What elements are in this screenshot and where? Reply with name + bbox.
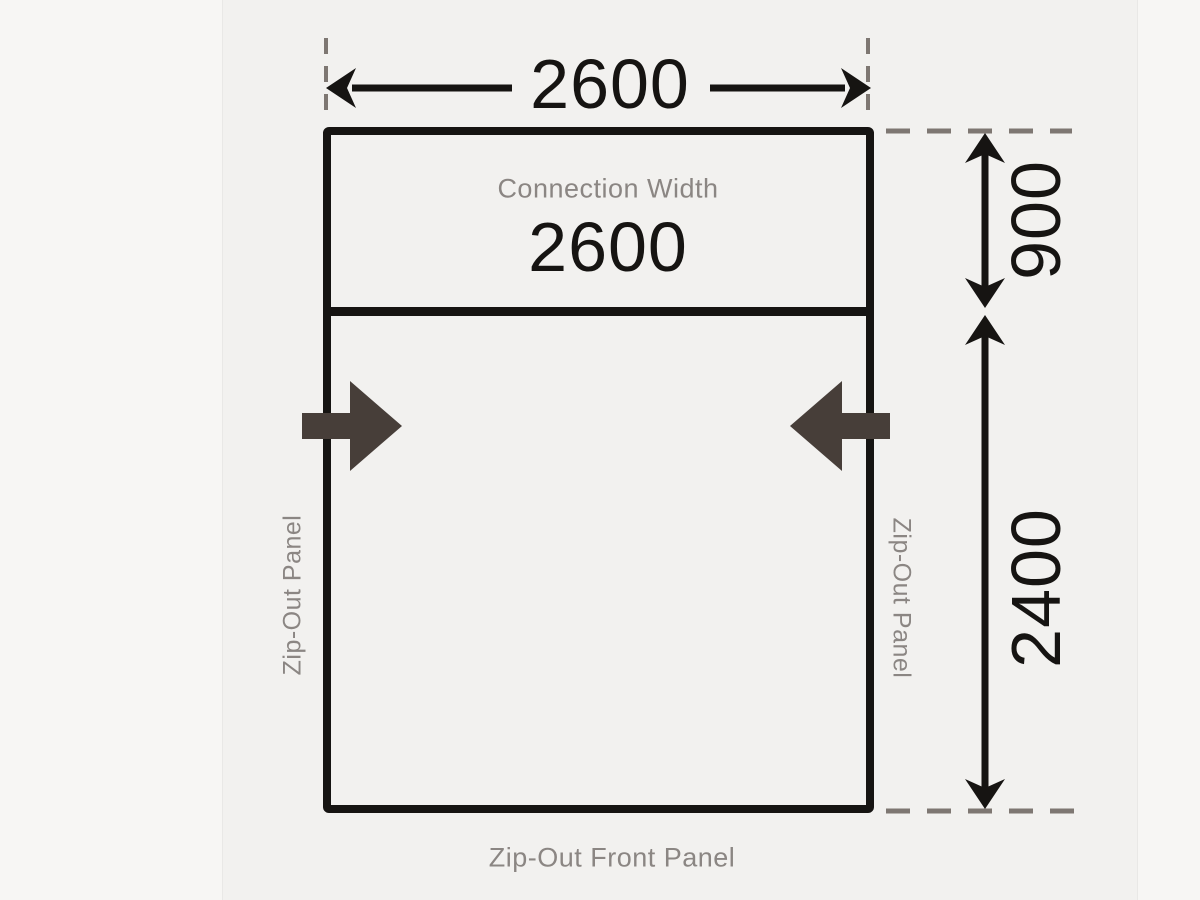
background-right-margin xyxy=(1137,0,1200,900)
top-width-value: 2600 xyxy=(530,49,690,119)
arrowhead-right-icon xyxy=(841,68,871,108)
left-zip-panel-label: Zip-Out Panel xyxy=(281,515,306,676)
arrowhead-up-900-icon xyxy=(965,133,1005,163)
right-zip-panel-label: Zip-Out Panel xyxy=(889,518,914,679)
arrowhead-down-900-icon xyxy=(965,278,1005,308)
connection-width-label: Connection Width xyxy=(497,176,718,203)
front-zip-panel-label: Zip-Out Front Panel xyxy=(489,845,736,872)
connection-width-value: 2600 xyxy=(528,212,688,282)
arrowhead-down-2400-icon xyxy=(965,779,1005,809)
arrowhead-left-icon xyxy=(326,68,356,108)
diagram-canvas: 2600 Connection Width 2600 900 2400 Zip-… xyxy=(0,0,1200,900)
arrowhead-up-2400-icon xyxy=(965,315,1005,345)
main-depth-value: 2400 xyxy=(1001,508,1071,668)
connection-depth-value: 900 xyxy=(1001,160,1071,280)
background-left-margin xyxy=(0,0,223,900)
